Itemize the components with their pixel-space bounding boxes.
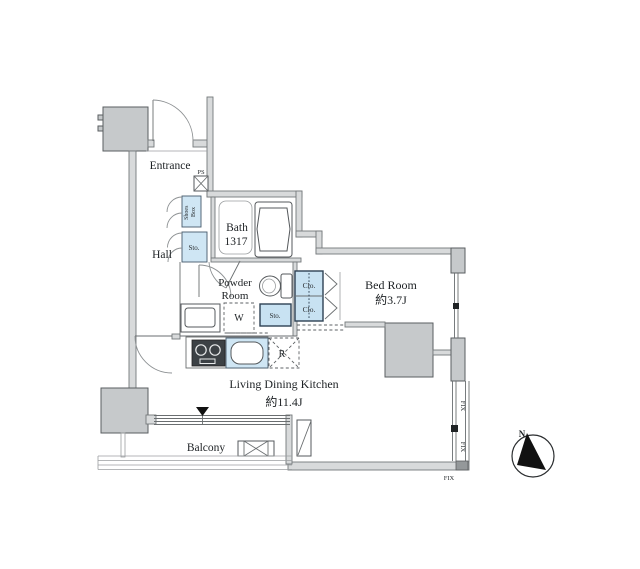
- pillar-bottom-left: [101, 388, 148, 433]
- pillar-top-left: [103, 107, 148, 151]
- fix-window-lock: [451, 425, 458, 432]
- room-label-hall: Hall: [152, 249, 172, 261]
- window-meeting-marker: [196, 407, 209, 416]
- hall-door-swing: [135, 336, 172, 373]
- entrance-wall-left: [148, 140, 154, 147]
- bath-west-wall: [211, 197, 215, 258]
- pillar-tick: [98, 126, 103, 131]
- entrance-wall-right: [193, 140, 208, 147]
- closet-lower-label: Clo.: [303, 305, 316, 314]
- refrigerator-label: R: [279, 349, 286, 360]
- closet-area: Clo. Clo.: [295, 271, 344, 330]
- pillar-east-stub: [433, 350, 452, 355]
- pillar-tick: [98, 115, 103, 120]
- hall-storage-area: Shoes Box Sto.: [167, 196, 207, 262]
- fix-lower-label: FIX: [459, 442, 466, 453]
- room-label-balcony: Balcony: [187, 442, 226, 454]
- door-post: [172, 334, 180, 339]
- hall-storage-label: Sto.: [188, 244, 199, 252]
- room-label-powder-1: Powder: [218, 277, 252, 289]
- floor-plan-page: PS Shoes Box Sto. W Sto.: [0, 0, 640, 569]
- compass-north-label: N: [519, 429, 526, 439]
- room-label-bedroom-size: 約3.7J: [375, 292, 407, 307]
- powder-storage-label: Sto.: [269, 312, 280, 320]
- window-lock: [453, 303, 459, 309]
- pipe-space-label: PS: [197, 169, 205, 176]
- room-label-powder-2: Room: [222, 290, 249, 302]
- kitchen-sink: [231, 342, 263, 364]
- shoes-box-door-swing: [167, 197, 182, 212]
- pillar-stub: [121, 433, 125, 457]
- bathtub: [257, 208, 290, 251]
- hall-door: [135, 336, 172, 373]
- window-frame-top: [451, 248, 465, 273]
- washing-machine-label: W: [234, 313, 244, 324]
- balcony-east-wall: [286, 415, 292, 464]
- shoes-box-line1: Shoes: [184, 205, 190, 220]
- bath-south-wall: [211, 258, 301, 262]
- shoes-box-door-swing: [167, 213, 182, 228]
- pillar-ldk: [385, 323, 433, 377]
- vanity-basin: [185, 308, 215, 327]
- step-wall-v1: [296, 191, 302, 237]
- closet-bifold-door: [325, 297, 337, 319]
- kitchen-area: R: [186, 333, 299, 368]
- floor-plan: PS Shoes Box Sto. W Sto.: [0, 0, 640, 569]
- closet-upper-label: Clo.: [303, 281, 316, 290]
- balcony-window-stub: [146, 415, 156, 424]
- south-wall: [288, 462, 469, 470]
- bedroom-window: [451, 248, 465, 381]
- shoes-box-line2: Box: [191, 207, 197, 217]
- bath-north-wall: [207, 191, 302, 197]
- room-label-bath-size: 1317: [225, 236, 248, 248]
- window-frame-bottom: [451, 338, 465, 381]
- room-label-entrance: Entrance: [150, 160, 191, 172]
- west-wall: [129, 151, 136, 389]
- compass: N: [512, 429, 554, 477]
- hall-storage-door-swing: [168, 233, 183, 248]
- bedroom-south-wall: [345, 322, 385, 327]
- toilet-tank: [281, 274, 292, 298]
- room-label-ldk: Living Dining Kitchen: [229, 377, 338, 391]
- closet-bifold-door: [325, 273, 337, 295]
- fix-upper-label: FIX: [459, 401, 466, 412]
- room-label-bath: Bath: [226, 222, 248, 234]
- entrance-door-swing: [153, 100, 193, 141]
- fix-bottom-label: FIX: [444, 475, 455, 482]
- bath-area: [209, 201, 292, 288]
- room-label-bedroom: Bed Room: [365, 278, 417, 292]
- bedroom-north-wall: [316, 248, 452, 254]
- corner-block: [456, 461, 468, 470]
- balcony-rail: [98, 456, 292, 470]
- room-label-ldk-size: 約11.4J: [265, 394, 303, 409]
